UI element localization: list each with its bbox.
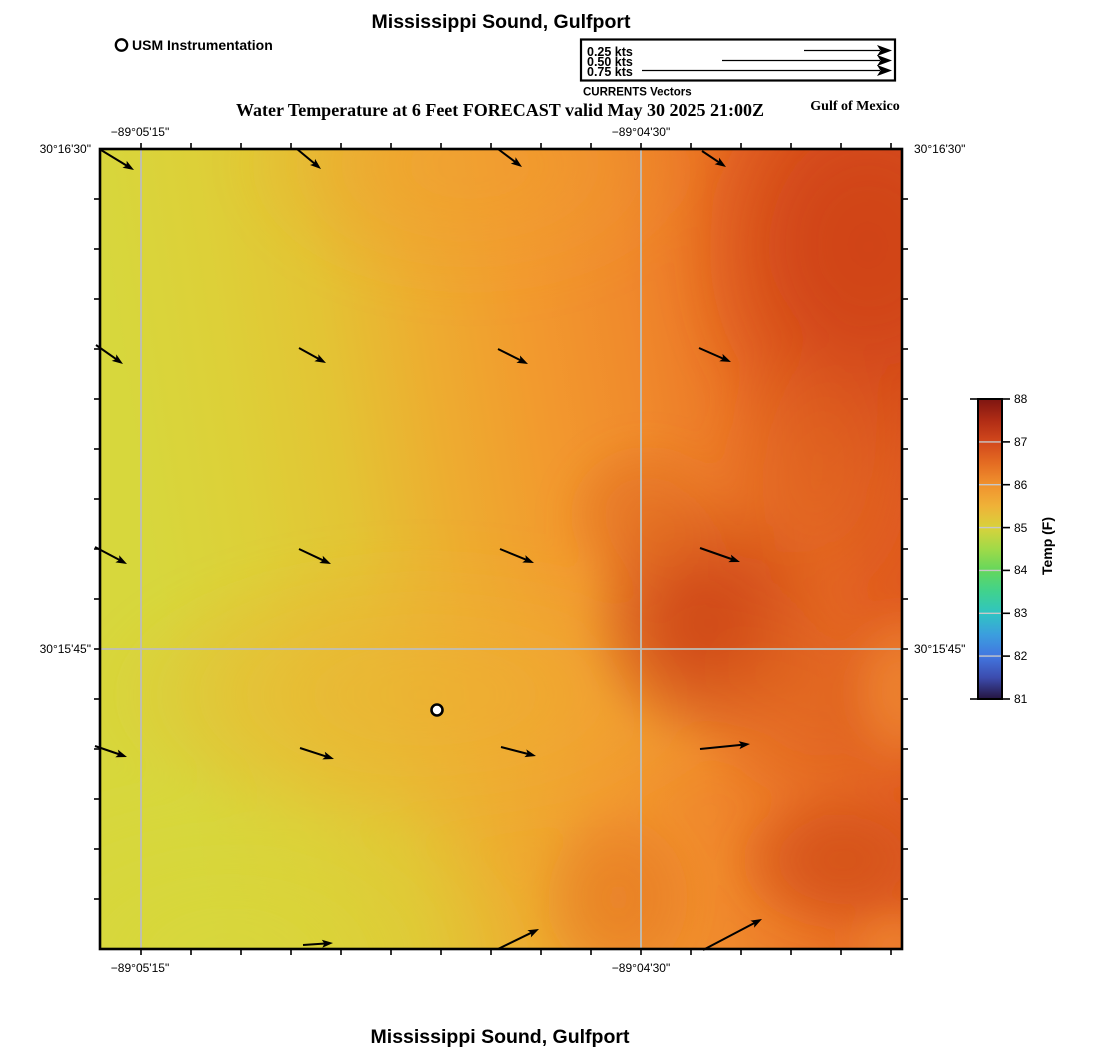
svg-text:84: 84 bbox=[1014, 563, 1028, 577]
svg-text:83: 83 bbox=[1014, 606, 1028, 620]
svg-text:−89°04'30": −89°04'30" bbox=[612, 125, 670, 139]
svg-text:87: 87 bbox=[1014, 435, 1028, 449]
svg-text:CURRENTS Vectors: CURRENTS Vectors bbox=[583, 87, 692, 99]
svg-text:Mississippi Sound, Gulfport: Mississippi Sound, Gulfport bbox=[371, 1026, 630, 1048]
svg-text:Gulf of Mexico: Gulf of Mexico bbox=[810, 99, 899, 114]
svg-text:30°16'30": 30°16'30" bbox=[40, 142, 91, 156]
svg-text:86: 86 bbox=[1014, 478, 1028, 492]
svg-text:Mississippi Sound, Gulfport: Mississippi Sound, Gulfport bbox=[372, 11, 631, 33]
svg-text:−89°04'30": −89°04'30" bbox=[612, 961, 670, 975]
svg-text:30°15'45": 30°15'45" bbox=[40, 642, 91, 656]
svg-text:81: 81 bbox=[1014, 692, 1028, 706]
svg-text:82: 82 bbox=[1014, 649, 1028, 663]
svg-text:Temp (F): Temp (F) bbox=[1039, 517, 1055, 575]
svg-text:88: 88 bbox=[1014, 392, 1028, 406]
svg-text:Water Temperature at 6 Feet FO: Water Temperature at 6 Feet FORECAST val… bbox=[236, 100, 764, 120]
svg-text:−89°05'15": −89°05'15" bbox=[111, 961, 169, 975]
svg-text:−89°05'15": −89°05'15" bbox=[111, 125, 169, 139]
svg-text:USM Instrumentation: USM Instrumentation bbox=[132, 37, 273, 53]
svg-text:85: 85 bbox=[1014, 521, 1028, 535]
svg-text:30°15'45": 30°15'45" bbox=[914, 642, 965, 656]
svg-text:30°16'30": 30°16'30" bbox=[914, 142, 965, 156]
svg-text:0.75 kts: 0.75 kts bbox=[587, 65, 633, 79]
